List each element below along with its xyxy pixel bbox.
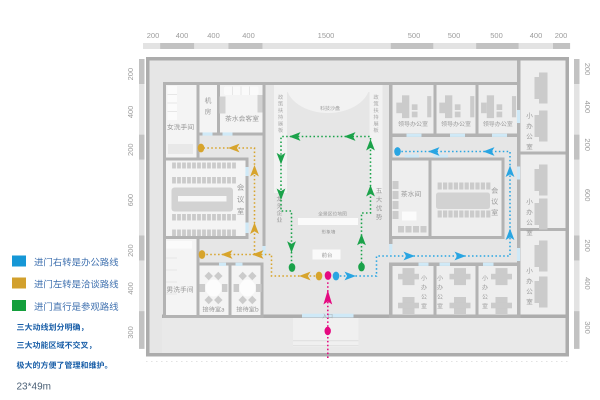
svg-text:500: 500 (408, 31, 421, 40)
svg-text:200: 200 (583, 63, 592, 76)
svg-text:300: 300 (583, 321, 592, 334)
svg-text:600: 600 (126, 194, 135, 207)
svg-text:400: 400 (207, 31, 220, 40)
svg-text:200: 200 (126, 68, 135, 81)
svg-text:200: 200 (126, 143, 135, 156)
svg-text:400: 400 (126, 282, 135, 295)
svg-text:200: 200 (555, 31, 568, 40)
svg-text:200: 200 (583, 138, 592, 151)
svg-text:1500: 1500 (318, 31, 335, 40)
svg-text:200: 200 (126, 244, 135, 257)
svg-text:400: 400 (583, 277, 592, 290)
svg-text:400: 400 (176, 31, 189, 40)
svg-text:400: 400 (242, 31, 255, 40)
svg-text:600: 600 (583, 189, 592, 202)
svg-text:23*49m: 23*49m (17, 382, 51, 393)
svg-text:200: 200 (147, 31, 160, 40)
svg-text:400: 400 (530, 31, 543, 40)
svg-text:500: 500 (490, 31, 503, 40)
svg-text:300: 300 (126, 326, 135, 339)
svg-text:400: 400 (126, 106, 135, 119)
svg-text:500: 500 (448, 31, 461, 40)
svg-text:200: 200 (583, 239, 592, 252)
svg-text:400: 400 (583, 101, 592, 114)
